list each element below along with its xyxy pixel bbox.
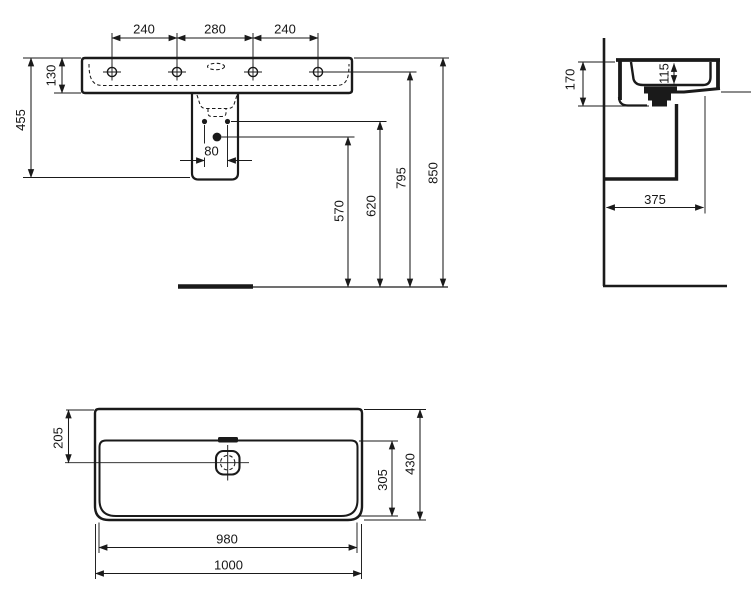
basin-side-profile [616, 60, 751, 107]
dim-wall-projection: 375 [607, 96, 706, 214]
dimension-label: 115 [657, 63, 672, 84]
overflow-slot-plan [218, 437, 238, 443]
dimension-label: 130 [44, 65, 59, 87]
washbasin-technical-drawing-page: 240 280 240 130 455 80 [0, 0, 752, 600]
fixing-hole-right [225, 119, 230, 124]
dim-inner-width: 980 [99, 523, 357, 554]
dimension-label: 305 [375, 469, 390, 491]
dimension-label: 980 [216, 532, 238, 547]
dimension-label: 375 [644, 192, 666, 207]
drain-funnel-dashed [197, 95, 237, 117]
dimension-label: 80 [204, 144, 218, 159]
dim-drain-centre-from-back: 205 [51, 410, 95, 463]
fixing-hole-left [202, 119, 207, 124]
dim-inner-bowl-depth: 115 [657, 63, 675, 84]
dim-bowl-section-depth: 305 [359, 441, 398, 516]
overflow-slot [208, 63, 225, 69]
side-view: 170 115 375 [563, 38, 752, 286]
dimension-label: 280 [204, 22, 226, 37]
washbasin-technical-drawing: 240 280 240 130 455 80 [0, 0, 752, 600]
dimension-label: 430 [403, 453, 418, 475]
dimension-label: 1000 [214, 558, 243, 573]
dimension-label: 850 [426, 162, 441, 184]
basin-inner-dashed-line [89, 64, 349, 86]
dimension-label: 570 [332, 200, 347, 222]
dim-rim-thickness: 130 [23, 58, 81, 93]
dim-tap-spacings: 240 280 240 [112, 22, 318, 68]
plan-view: 205 305 430 980 1000 [51, 409, 427, 579]
trap-cover-side [605, 104, 677, 179]
waste-outlet-hole [213, 133, 222, 142]
extension-lines [222, 58, 450, 137]
dimension-label: 240 [274, 22, 296, 37]
drain-plan [65, 445, 249, 481]
waste-trap-steps [644, 87, 677, 107]
dim-basin-unit-height: 455 [13, 58, 190, 178]
dimension-label: 170 [563, 69, 578, 91]
dimension-label: 455 [13, 109, 28, 131]
dimension-label: 205 [51, 427, 66, 449]
front-view: 240 280 240 130 455 80 [13, 22, 449, 288]
back-foot [619, 97, 647, 106]
basin-plan-outer [95, 409, 362, 520]
dimension-label: 620 [364, 195, 379, 217]
dimension-label: 240 [133, 22, 155, 37]
dimension-label: 795 [394, 167, 409, 189]
dim-fixing-hole-spacing: 80 [180, 125, 252, 167]
floor-line-front [178, 287, 448, 288]
dim-overall-depth: 430 [364, 410, 426, 521]
